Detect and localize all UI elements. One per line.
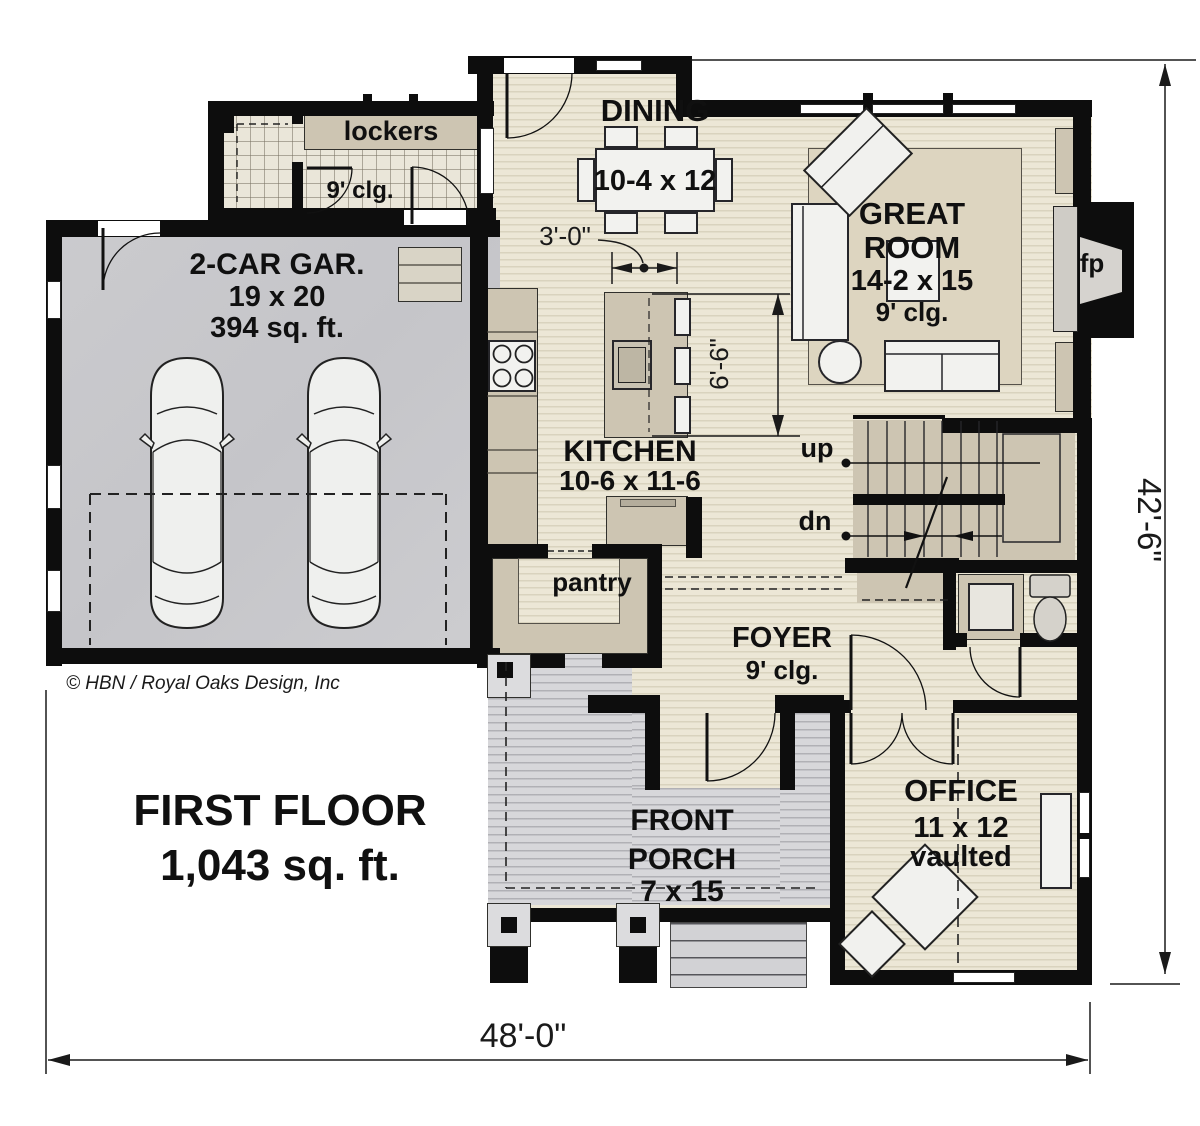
- dining-door-opening: [504, 58, 574, 73]
- foyer-bottom-wall-a: [588, 695, 660, 713]
- stairs-dn-label: dn: [793, 508, 837, 535]
- pantry-top-wall-a: [486, 544, 548, 558]
- stairs-top-edge: [853, 415, 945, 419]
- gr-window-1: [800, 104, 864, 114]
- mudroom-top-wall: [208, 101, 494, 116]
- dining-chair-1: [604, 126, 638, 148]
- stove: [488, 340, 536, 392]
- side-table: [818, 340, 862, 384]
- bath-sink: [968, 583, 1014, 631]
- bath-top-wall: [943, 560, 1092, 573]
- garage-service-door-opening: [98, 221, 160, 236]
- garage-window-3: [47, 570, 61, 612]
- dining-size: 10-4 x 12: [565, 167, 745, 196]
- porch-size: 7 x 15: [600, 877, 764, 907]
- dining-chair-4: [664, 212, 698, 234]
- copyright: © HBN / Royal Oaks Design, Inc: [66, 674, 340, 693]
- mudroom-ceiling-label: 9' clg.: [300, 179, 420, 203]
- dining-left-window: [480, 128, 494, 194]
- exterior-patch-top: [692, 20, 1100, 100]
- porch-post-3-core: [630, 917, 646, 933]
- mudroom-partition-stub: [292, 112, 303, 124]
- loveseat: [884, 340, 1000, 392]
- garage-window-1: [47, 281, 61, 319]
- office-right-window-tick: [1077, 833, 1092, 839]
- office-bottom-window: [953, 972, 1015, 983]
- refrigerator-top: [620, 499, 676, 507]
- fireplace-cabinet-upper: [1055, 128, 1075, 194]
- vestibule-stub-left: [645, 713, 660, 790]
- mudroom-tick-2: [409, 94, 418, 103]
- kitchen-counter: [486, 288, 538, 546]
- mudroom-tick-1: [363, 94, 372, 103]
- porch-post-2-core: [501, 917, 517, 933]
- porch-label-1: FRONT: [600, 806, 764, 836]
- exterior-patch-left-strip: [468, 664, 488, 924]
- garage-size: 19 x 20: [157, 283, 397, 312]
- pantry-left-wall: [477, 544, 492, 668]
- vestibule-stub-right: [780, 713, 795, 790]
- porch-steps: [670, 922, 807, 988]
- garage-label: 2-CAR GAR.: [157, 250, 397, 280]
- great-room-ceiling: 9' clg.: [822, 299, 1002, 325]
- kitchen-foyer-stub: [686, 497, 702, 558]
- office-left-wall: [830, 700, 845, 985]
- porch-label-2: PORCH: [600, 845, 764, 875]
- garage-area: 394 sq. ft.: [157, 314, 397, 343]
- fireplace-cabinet-lower: [1055, 342, 1075, 412]
- floor-plan: 2-CAR GAR. 19 x 20 394 sq. ft. lockers 9…: [0, 0, 1200, 1126]
- stairs-top-wall: [942, 418, 1092, 433]
- pantry-label: pantry: [530, 569, 654, 595]
- island-stool-1: [674, 298, 691, 336]
- gr-window-2: [872, 104, 944, 114]
- dim-width-label: 48'-0": [448, 1019, 598, 1053]
- floor-area: 1,043 sq. ft.: [100, 844, 460, 888]
- bath-bottom-wall-b: [1020, 633, 1092, 647]
- floor-title: FIRST FLOOR: [100, 789, 460, 833]
- lockers-label: lockers: [304, 118, 478, 145]
- porch-post-1-core: [497, 662, 513, 678]
- great-room-label-1: GREAT: [822, 198, 1002, 229]
- dining-top-wall: [468, 56, 692, 74]
- foyer-label: FOYER: [702, 624, 862, 653]
- garage-window-2: [47, 465, 61, 509]
- dining-chair-2: [664, 126, 698, 148]
- island-stool-2: [674, 347, 691, 385]
- dining-label: DINING: [570, 95, 740, 126]
- dim-kitchen-clearance-label: 6'-6": [706, 324, 734, 404]
- great-room-right-wall-lower: [1073, 332, 1091, 430]
- dim-dining-clearance-label: 3'-0": [520, 223, 610, 249]
- dim-height-label: 42'-6": [1130, 475, 1166, 565]
- gr-window-tick-2: [943, 93, 953, 102]
- porch-rail-a: [531, 908, 616, 922]
- understair-closet: [857, 573, 956, 603]
- island-stool-3: [674, 396, 691, 434]
- garage-cabinet: [398, 247, 462, 302]
- porch-footing-1: [490, 947, 528, 983]
- great-room-size: 14-2 x 15: [822, 267, 1002, 296]
- gr-window-tick-1: [863, 93, 873, 102]
- foyer-ceiling: 9' clg.: [702, 657, 862, 683]
- office-size: 11 x 12: [870, 814, 1052, 843]
- office-top-wall-b: [953, 700, 1092, 713]
- kitchen-label: KITCHEN: [540, 437, 720, 467]
- garage-bottom-wall: [46, 648, 500, 664]
- mudroom-garage-door-opening: [404, 210, 466, 225]
- fireplace-label: fp: [1072, 250, 1112, 276]
- kitchen-size: 10-6 x 11-6: [535, 467, 725, 495]
- porch-rail-b: [660, 908, 830, 922]
- great-room-label-2: ROOM: [822, 232, 1002, 263]
- island-sink-basin: [618, 347, 646, 383]
- pantry-top-wall-b: [592, 544, 662, 558]
- gr-window-3: [952, 104, 1016, 114]
- bath-bottom-wall-a: [943, 633, 967, 647]
- great-room-right-wall-upper: [1073, 117, 1091, 207]
- mudroom-corner: [208, 101, 234, 133]
- office-label: OFFICE: [870, 775, 1052, 806]
- porch-footing-2: [619, 947, 657, 983]
- stairs-area: [853, 420, 1075, 560]
- office-note: vaulted: [870, 843, 1052, 872]
- stairs-bottom-wall: [845, 558, 959, 573]
- stairs-up-label: up: [795, 435, 839, 462]
- dining-window: [596, 60, 642, 71]
